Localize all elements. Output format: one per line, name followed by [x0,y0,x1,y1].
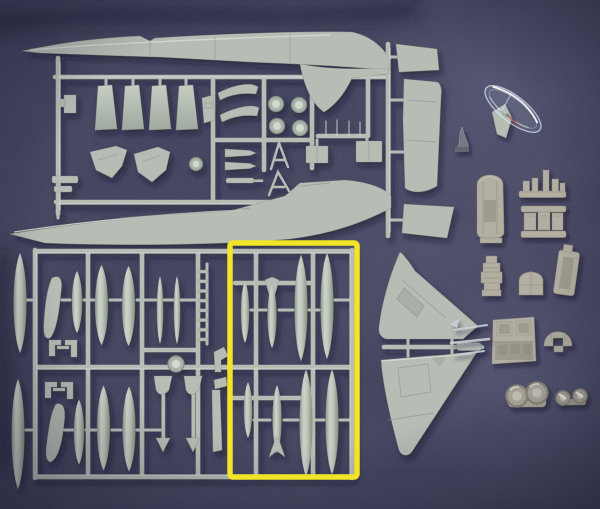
model-kit-photo [0,0,600,509]
vignette [0,0,600,509]
photo [0,0,600,509]
